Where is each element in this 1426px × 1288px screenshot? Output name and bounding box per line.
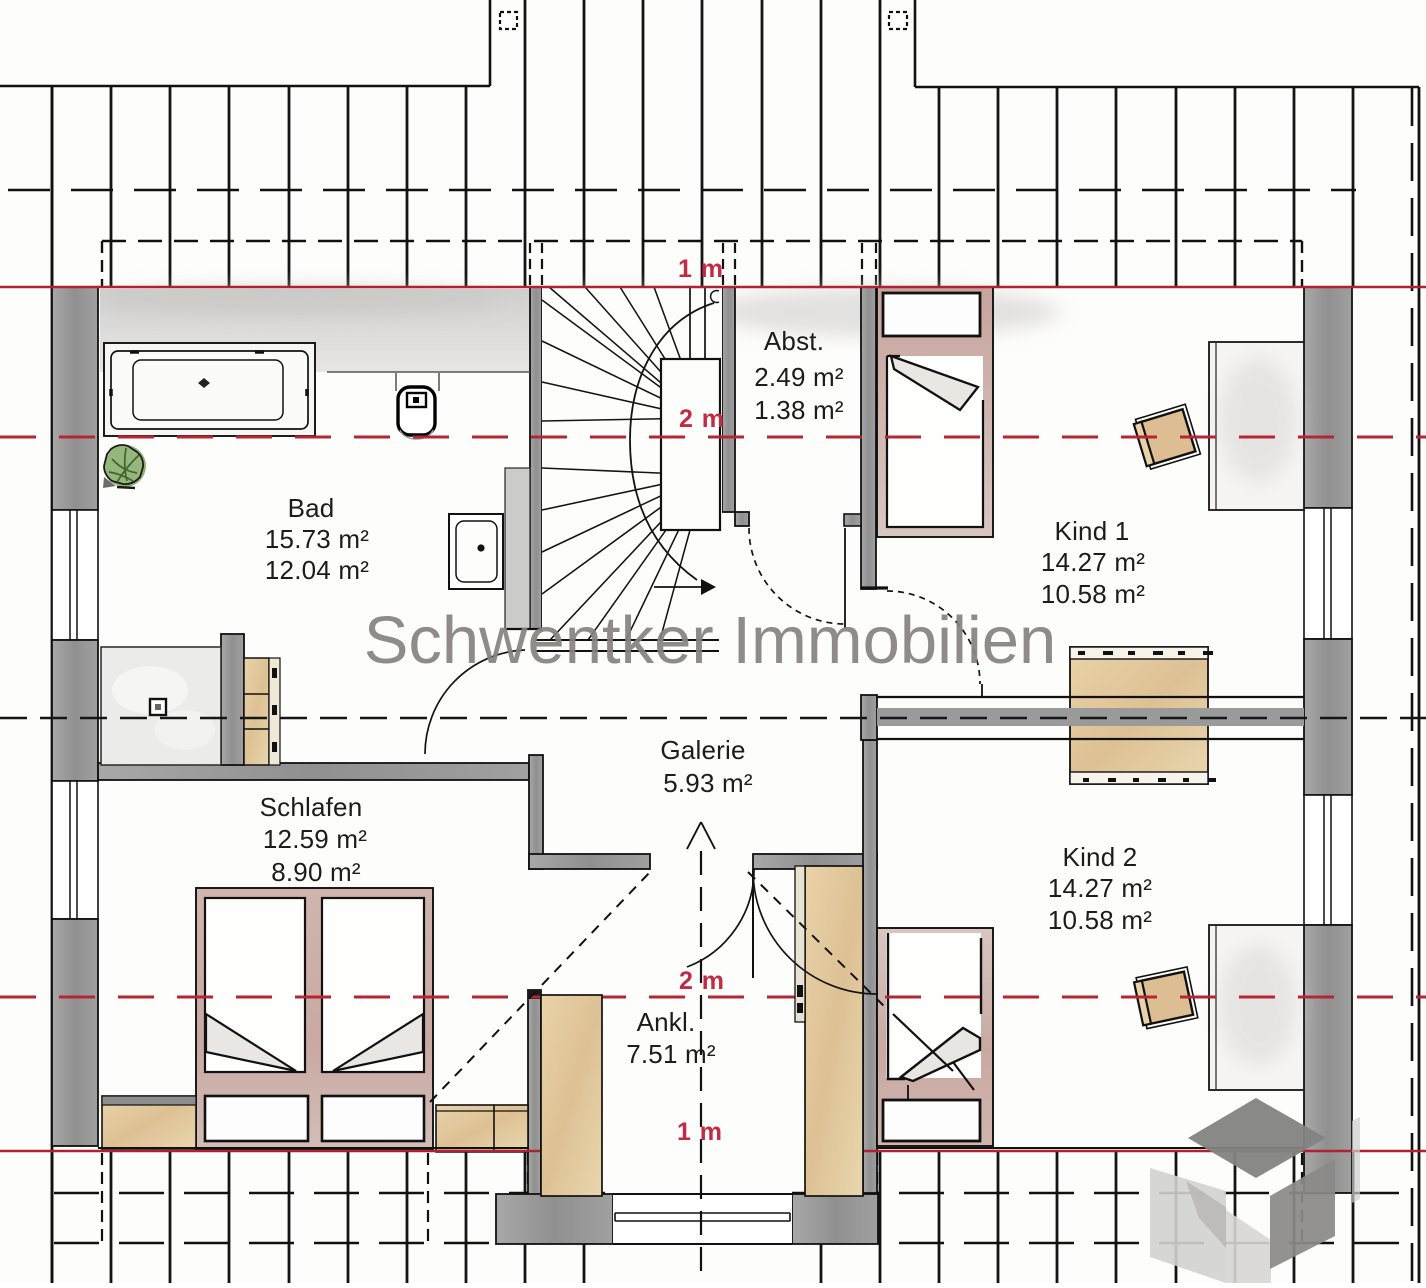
svg-text:1 m: 1 m — [677, 1118, 723, 1146]
svg-text:14.27 m²: 14.27 m² — [1048, 873, 1152, 903]
svg-text:10.58 m²: 10.58 m² — [1041, 579, 1145, 609]
svg-text:Galerie: Galerie — [660, 735, 745, 765]
svg-text:Abst.: Abst. — [764, 326, 824, 356]
svg-text:1.38 m²: 1.38 m² — [754, 395, 844, 425]
svg-text:Ankl.: Ankl. — [637, 1007, 696, 1037]
svg-text:12.04 m²: 12.04 m² — [265, 555, 369, 585]
svg-text:2 m: 2 m — [679, 405, 725, 433]
svg-text:12.59 m²: 12.59 m² — [263, 824, 367, 854]
svg-text:15.73 m²: 15.73 m² — [265, 524, 369, 554]
svg-text:Kind 2: Kind 2 — [1063, 842, 1138, 872]
svg-text:Bad: Bad — [288, 493, 335, 523]
svg-text:2 m: 2 m — [679, 967, 725, 995]
svg-text:2.49 m²: 2.49 m² — [754, 362, 844, 392]
svg-text:10.58 m²: 10.58 m² — [1048, 905, 1152, 935]
svg-text:Schlafen: Schlafen — [260, 792, 363, 822]
svg-text:7.51 m²: 7.51 m² — [626, 1039, 716, 1069]
svg-text:Kind 1: Kind 1 — [1055, 516, 1130, 546]
svg-text:1 m: 1 m — [678, 255, 724, 283]
svg-text:14.27 m²: 14.27 m² — [1041, 547, 1145, 577]
svg-text:5.93 m²: 5.93 m² — [663, 768, 753, 798]
svg-text:Schwentker Immobilien: Schwentker Immobilien — [364, 603, 1057, 678]
svg-text:8.90 m²: 8.90 m² — [271, 857, 361, 887]
